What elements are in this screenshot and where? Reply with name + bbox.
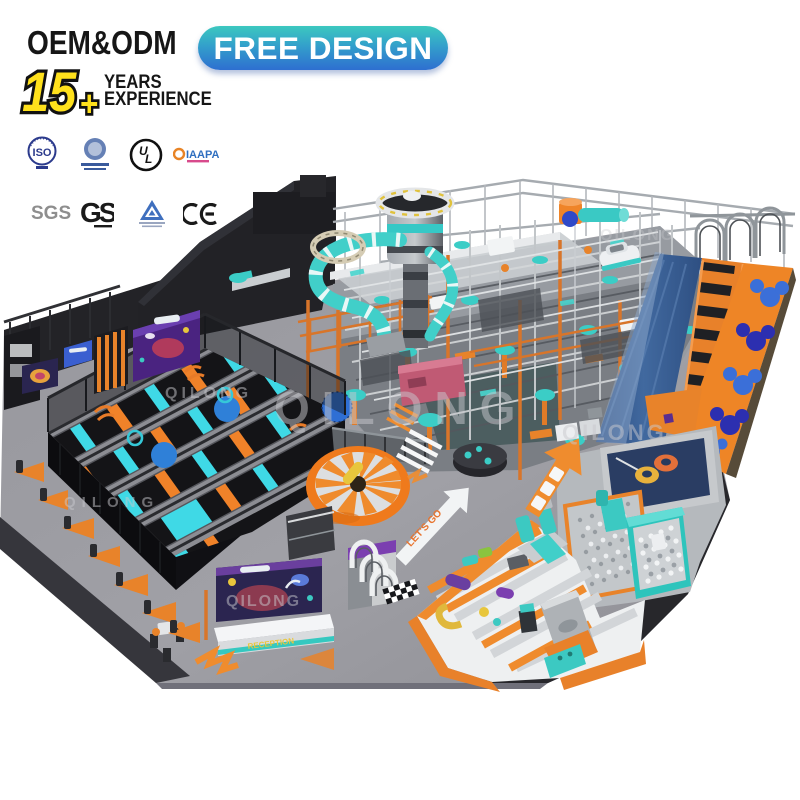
svg-text:QILONG: QILONG: [226, 593, 301, 610]
svg-text:QILONG: QILONG: [165, 385, 252, 402]
svg-text:QILONG: QILONG: [64, 494, 159, 511]
svg-text:+: +: [80, 84, 98, 124]
svg-text:15: 15: [22, 61, 77, 124]
svg-text:IAAPA: IAAPA: [186, 149, 219, 161]
svg-text:QILONG: QILONG: [562, 420, 667, 445]
svg-text:L: L: [145, 152, 152, 166]
svg-text:ISO: ISO: [33, 147, 52, 159]
svg-text:QILONG: QILONG: [274, 382, 527, 434]
svg-text:QILONG: QILONG: [600, 227, 675, 244]
svg-text:GS: GS: [80, 197, 114, 228]
